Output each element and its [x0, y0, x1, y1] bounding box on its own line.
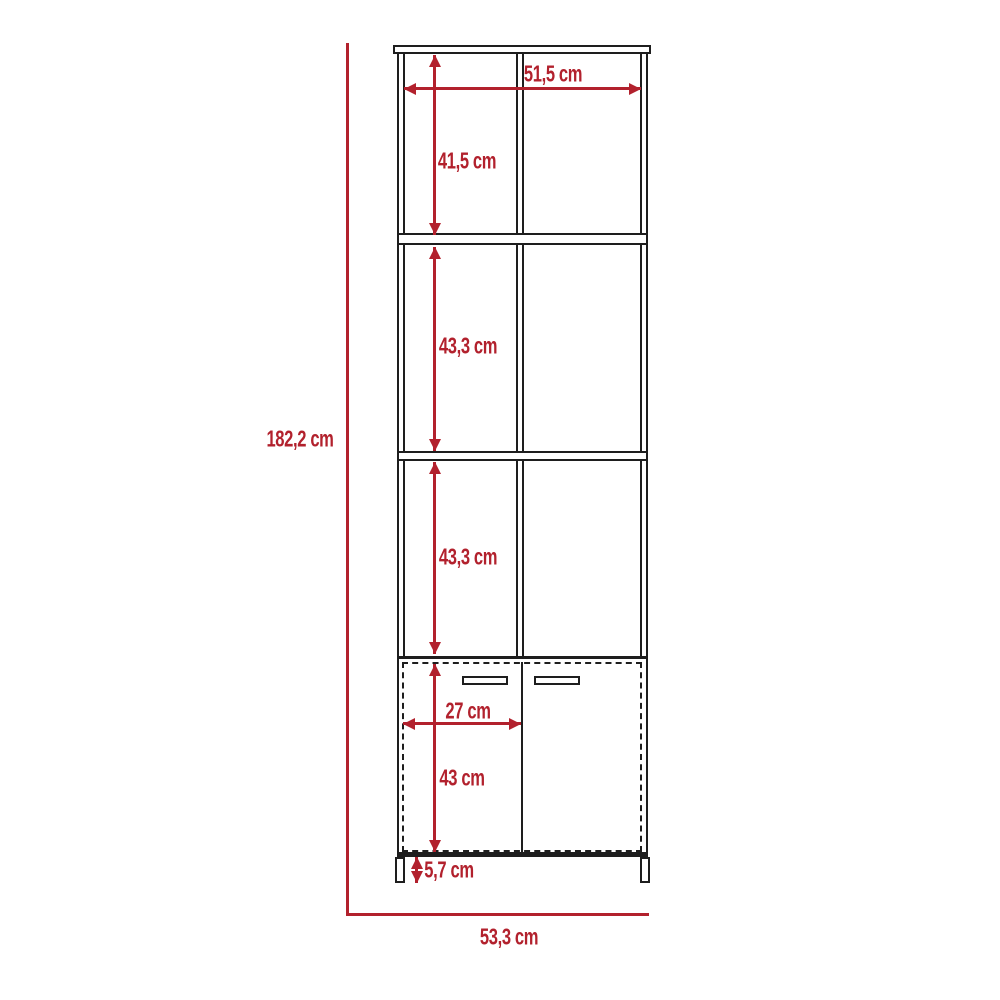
center-divider-right-line [522, 53, 524, 658]
center-divider-left-line [516, 53, 518, 658]
door-center-gap-line [521, 662, 523, 853]
top-compartment-arrow [433, 55, 436, 235]
door-height-arrow [433, 664, 436, 852]
leg-right [640, 857, 650, 883]
door-handle-right [534, 676, 580, 685]
cabinet-right-wall-outer [646, 53, 648, 858]
leg-height-arrow [415, 857, 418, 883]
cabinet-left-wall-inner [403, 53, 405, 658]
third-compartment-label: 43,3 cm [439, 546, 497, 569]
second-compartment-arrow [433, 247, 436, 451]
leg-height-label: 5,7 cm [424, 859, 473, 882]
shelf-2 [399, 451, 646, 461]
overall-width-label: 53,3 cm [480, 926, 538, 949]
door-height-label: 43 cm [439, 767, 484, 790]
door-handle-left [462, 676, 508, 685]
overall-height-label: 182,2 cm [266, 428, 333, 451]
cabinet-right-wall-inner [640, 53, 642, 658]
second-compartment-label: 43,3 cm [439, 335, 497, 358]
dimension-diagram: 51,5 cm 41,5 cm 43,3 cm 182,2 cm 43,3 cm… [0, 0, 1000, 1000]
top-compartment-label: 41,5 cm [438, 150, 496, 173]
overall-height-extent-line [346, 43, 349, 916]
base-cabinet-top-line [399, 656, 646, 659]
overall-width-extent-line [346, 913, 649, 916]
inner-width-arrow [404, 87, 641, 90]
inner-width-label: 51,5 cm [524, 63, 582, 86]
door-width-label: 27 cm [445, 700, 490, 723]
leg-left [395, 857, 405, 883]
third-compartment-arrow [433, 462, 436, 654]
